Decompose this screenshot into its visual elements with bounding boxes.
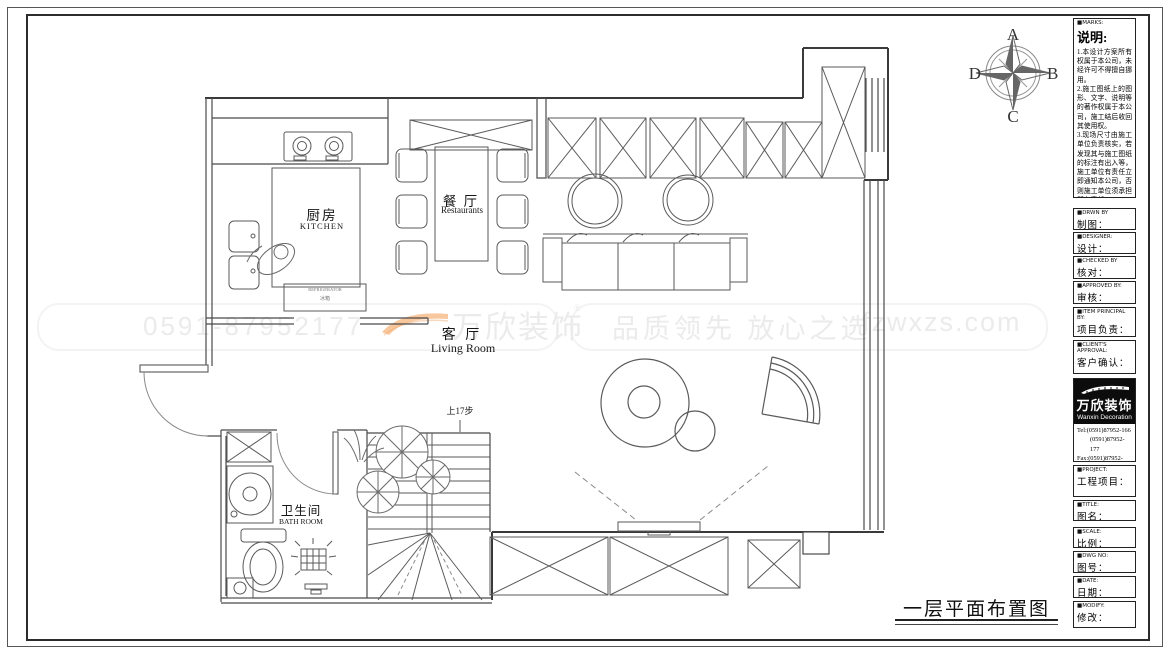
contact-info: Tel:(0591)87952-166 (0591)87952-177 Fax:… <box>1077 426 1132 462</box>
field-header: ■SCALE: <box>1077 529 1132 535</box>
titleblock-notes: ■MARKS: 说明: 1.本设计方案所有权属于本公司，未经许可不得擅自挪用。 … <box>1073 18 1136 198</box>
field-label: 项目负责： <box>1077 322 1132 336</box>
field-label: 设计： <box>1077 241 1132 254</box>
field-header: ■ITEM PRINCIPAL BY: <box>1077 309 1132 321</box>
note-1: 1.本设计方案所有权属于本公司，未经许可不得擅自挪用。 <box>1077 48 1132 85</box>
contact-tel-1: Tel:(0591)87952-166 <box>1077 426 1132 435</box>
person-figure <box>247 237 300 281</box>
dining-label-en: Restaurants <box>441 205 483 215</box>
compass-letter-left: D <box>969 64 981 83</box>
dining-cabinet <box>410 120 532 150</box>
field-title: ■TITLE: 图名： <box>1073 500 1136 521</box>
company-logo: 万欣装饰 Wanxin Decoration <box>1074 379 1135 424</box>
floor-plan-svg: A B C D <box>0 0 1170 653</box>
field-header: ■TITLE: <box>1077 502 1132 508</box>
field-header: ■PROJECT: <box>1077 467 1132 473</box>
field-checked-by: ■CHECKED BY 核对： <box>1073 256 1136 279</box>
field-project: ■PROJECT: 工程项目： <box>1073 465 1136 497</box>
drawing-title-underline <box>895 619 1058 621</box>
living-round-table <box>601 359 715 451</box>
field-label: 比例： <box>1077 536 1132 548</box>
field-label: 制图： <box>1077 217 1132 230</box>
field-label: 图名： <box>1077 509 1132 521</box>
field-scale: ■SCALE: 比例： <box>1073 527 1136 548</box>
kitchen-label-en: KITCHEN <box>300 221 344 231</box>
logo-name-zh: 万欣装饰 <box>1074 399 1135 413</box>
marks-header: ■MARKS: <box>1077 20 1132 26</box>
washing-machine <box>227 432 271 462</box>
shower-head <box>291 538 336 594</box>
bar-counter <box>543 174 748 290</box>
living-label-en: Living Room <box>431 341 495 356</box>
compass-rose: A B C D <box>969 25 1059 126</box>
fan-armchair <box>762 357 820 424</box>
drawing-sheet: 0591-87952177 万欣装饰 ® 品质领先 放心之选 fzwxzs.co… <box>0 0 1170 653</box>
field-label: 审核： <box>1077 290 1132 304</box>
note-2: 2.施工图纸上的图形、文字、说明等的著作权属于本公司，施工结后收回其使用权。 <box>1077 85 1132 131</box>
field-drawn-by: ■DRWN BY 制图： <box>1073 208 1136 230</box>
tv-unit <box>575 466 768 535</box>
contact-tel-2: (0591)87952-177 <box>1077 435 1132 453</box>
field-label: 客户确认： <box>1077 355 1132 369</box>
field-label: 日期： <box>1077 585 1132 598</box>
kitchen-sink <box>229 221 259 289</box>
field-header: ■DRWN BY <box>1077 210 1132 216</box>
compass-letter-right: B <box>1047 64 1058 83</box>
field-label: 核对： <box>1077 265 1132 279</box>
floor-drain <box>227 578 253 598</box>
plants <box>344 426 450 513</box>
bath-label-en: BATH ROOM <box>279 517 323 526</box>
bathroom-door <box>277 432 338 494</box>
field-header: ■DATE: <box>1077 578 1132 584</box>
field-item-principal: ■ITEM PRINCIPAL BY: 项目负责： <box>1073 307 1136 337</box>
kitchen-stove <box>284 132 352 161</box>
entry-door <box>140 365 208 436</box>
closet-cabinets <box>548 67 865 178</box>
field-client-approval: ■CLIENT'S APPROVAL: 客户确认： <box>1073 340 1136 374</box>
bath-vanity <box>227 466 273 523</box>
field-approved-by: ■APPROVED BY: 审核： <box>1073 281 1136 304</box>
field-label: 修改： <box>1077 610 1132 624</box>
field-label: 图号： <box>1077 560 1132 573</box>
field-header: ■CHECKED BY <box>1077 258 1132 264</box>
field-header: ■APPROVED BY: <box>1077 283 1132 289</box>
field-dwg-no: ■DWG NO: 图号： <box>1073 551 1136 573</box>
contact-fax: Fax:(0591)87952-199 <box>1077 454 1132 462</box>
fridge-label-line1: REFRIGERATOR <box>308 287 341 292</box>
compass-letter-bottom: C <box>1007 107 1018 126</box>
field-designer: ■DESIGNER: 设计： <box>1073 232 1136 254</box>
field-label: 工程项目： <box>1077 474 1132 488</box>
stairs-note-label: 上17步 <box>446 404 473 417</box>
field-header: ■CLIENT'S APPROVAL: <box>1077 342 1132 354</box>
field-header: ■DWG NO: <box>1077 553 1132 559</box>
toilet <box>241 529 286 592</box>
logo-name-en: Wanxin Decoration <box>1074 414 1135 421</box>
fridge-label-line2: 冰箱 <box>320 295 330 302</box>
company-block: 万欣装饰 Wanxin Decoration Tel:(0591)87952-1… <box>1073 378 1136 462</box>
field-header: ■MODIFY: <box>1077 603 1132 609</box>
notes-title: 说明: <box>1077 27 1132 46</box>
field-modify: ■MODIFY: 修改： <box>1073 601 1136 628</box>
drawing-title: 一层平面布置图 <box>895 594 1058 621</box>
field-header: ■DESIGNER: <box>1077 234 1132 240</box>
logo-roof-icon <box>1079 383 1131 394</box>
tv-wall-cabinets <box>490 537 800 595</box>
note-3: 3.现场尺寸由施工单位负责核实，若发现其与施工图纸的标注有出入等，施工单位有责任… <box>1077 131 1132 198</box>
field-date: ■DATE: 日期： <box>1073 576 1136 598</box>
drawing-title-underline-2 <box>895 624 1058 625</box>
compass-letter-top: A <box>1007 25 1020 44</box>
